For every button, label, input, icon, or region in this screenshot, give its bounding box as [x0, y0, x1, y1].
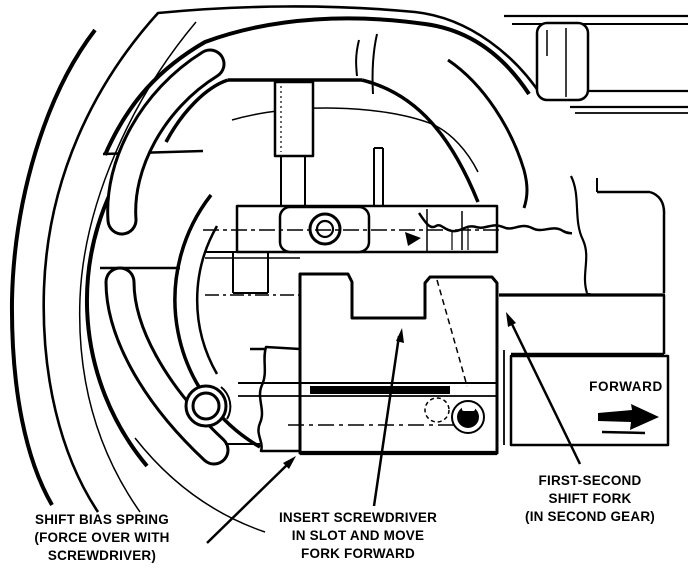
hub-key	[275, 82, 313, 156]
annotation-line: SHIFT FORK	[498, 490, 682, 508]
fork-left-block	[258, 347, 300, 451]
annotation-line: SCREWDRIVER)	[2, 547, 202, 565]
hub-assembly	[203, 82, 500, 295]
annotation-line: SHIFT BIAS SPRING	[2, 511, 202, 529]
annotation-line: FIRST-SECOND	[498, 472, 682, 490]
annotation-line: FORK FORWARD	[260, 545, 456, 563]
annotation-shift-bias-spring: SHIFT BIAS SPRING (FORCE OVER WITH SCREW…	[2, 511, 202, 565]
case-lug	[537, 23, 588, 100]
annotation-line: IN SLOT AND MOVE	[260, 527, 456, 545]
annotation-first-second-fork: FIRST-SECOND SHIFT FORK (IN SECOND GEAR)	[498, 472, 682, 526]
shift-fork	[225, 274, 497, 453]
annotation-line: INSERT SCREWDRIVER	[260, 509, 456, 527]
annotation-line: (IN SECOND GEAR)	[498, 508, 682, 526]
figure-canvas: SHIFT BIAS SPRING (FORCE OVER WITH SCREW…	[0, 0, 688, 582]
annotation-line: (FORCE OVER WITH	[2, 529, 202, 547]
annotation-forward: FORWARD	[575, 379, 677, 394]
annotation-insert-screwdriver: INSERT SCREWDRIVER IN SLOT AND MOVE FORK…	[260, 509, 456, 563]
